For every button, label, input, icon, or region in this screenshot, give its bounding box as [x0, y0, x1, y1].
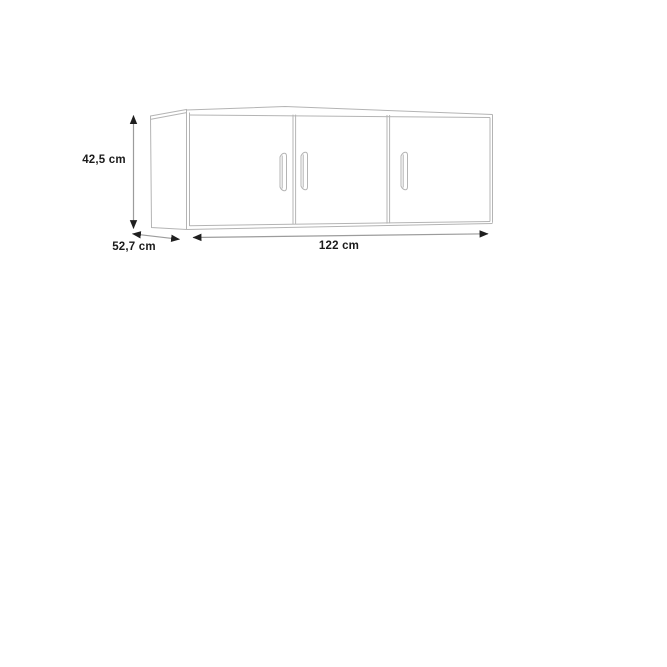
- door-handle-1: [280, 153, 287, 191]
- depth-dimension-arrow: [133, 234, 180, 240]
- cabinet-side-panel: [151, 110, 187, 230]
- door-handle-3: [401, 152, 408, 190]
- cabinet-line-drawing: [0, 0, 667, 667]
- door-divider-2: [387, 115, 390, 224]
- height-dimension-label: 42,5 cm: [64, 154, 144, 166]
- width-dimension-label: 122 cm: [299, 240, 379, 252]
- product-dimension-image: 42,5 cm 52,7 cm 122 cm: [0, 0, 667, 667]
- width-dimension-arrow: [193, 234, 488, 238]
- door-handle-2: [301, 152, 308, 190]
- door-divider-1: [293, 115, 296, 225]
- depth-dimension-label: 52,7 cm: [94, 241, 174, 253]
- cabinet-carcass: [187, 107, 493, 230]
